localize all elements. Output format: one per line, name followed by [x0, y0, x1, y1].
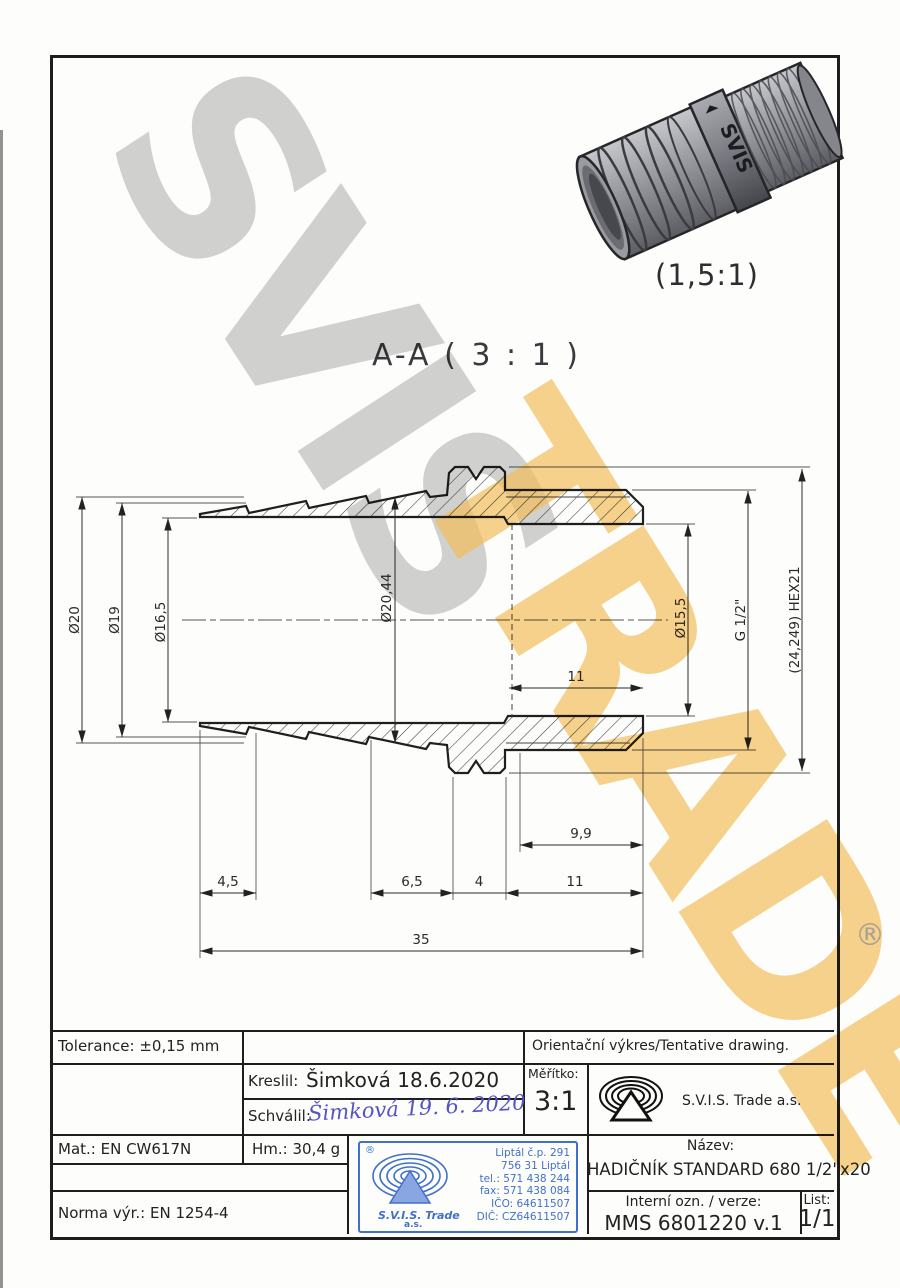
- company-name: S.V.I.S. Trade a.s.: [682, 1093, 801, 1109]
- stamp-address-line: 756 31 Liptál: [440, 1160, 570, 1173]
- extension-lines: [76, 467, 810, 958]
- dim-bore-dia-16-5: Ø16,5: [153, 602, 169, 643]
- part-photo-3d: SVIS: [575, 58, 845, 273]
- dim-bore-depth-11: 11: [567, 669, 584, 685]
- dimension-labels: Ø20 Ø19 Ø16,5 Ø20,44 Ø15,5 G 1/2" (24,24…: [67, 566, 803, 948]
- stamp-address: Liptál č.p. 291 756 31 Liptál tel.: 571 …: [440, 1147, 570, 1224]
- standard-value: Norma výr.: EN 1254-4: [58, 1204, 229, 1222]
- section-view-title: A-A ( 3 : 1 ): [372, 338, 581, 373]
- stamp-address-line: tel.: 571 438 244: [440, 1173, 570, 1186]
- dim-length-11: 11: [566, 874, 583, 890]
- dim-length-4: 4: [475, 874, 484, 890]
- material-value: Mat.: EN CW617N: [58, 1140, 191, 1158]
- dim-length-4-5: 4,5: [217, 874, 238, 890]
- drawing-sheet: SVIS (1,5:1) A-A ( 3 : 1 ): [0, 0, 900, 1288]
- dim-hex-21: (24,249) HEX21: [787, 566, 803, 673]
- stamp-company-suffix: a.s.: [404, 1220, 422, 1230]
- dim-thread-g-half: G 1/2": [733, 599, 749, 642]
- tentative-drawing-note: Orientační výkres/Tentative drawing.: [532, 1038, 789, 1054]
- upper-wall: [200, 467, 643, 524]
- dim-outer-dia-19: Ø19: [107, 606, 123, 634]
- name-label: Název:: [587, 1138, 834, 1154]
- photo-scale-label: (1,5:1): [655, 258, 759, 292]
- tolerance-note: Tolerance: ±0,15 mm: [58, 1037, 219, 1055]
- internal-code-label: Interní ozn. / verze:: [587, 1194, 800, 1210]
- dim-outer-dia-20: Ø20: [67, 606, 83, 634]
- drawn-by-label: Kreslil:: [248, 1072, 298, 1090]
- fitting-render: SVIS: [575, 58, 845, 267]
- dim-length-9-9: 9,9: [570, 826, 591, 842]
- stamp-address-line: Liptál č.p. 291: [440, 1147, 570, 1160]
- sheet-value: 1/1: [798, 1206, 836, 1232]
- part-name: HADIČNÍK STANDARD 680 1/2"x20: [587, 1160, 834, 1179]
- lower-wall: [200, 716, 643, 773]
- company-stamp: ® S.V.I.S. Trade a.s. Liptál č.p. 291 75…: [358, 1141, 578, 1233]
- company-logo: [598, 1074, 664, 1126]
- approved-by-label: Schválil:: [248, 1107, 311, 1125]
- scale-value: 3:1: [534, 1086, 577, 1117]
- stamp-logo: [370, 1151, 450, 1207]
- dim-length-6-5: 6,5: [401, 874, 422, 890]
- internal-code-value: MMS 6801220 v.1: [587, 1211, 800, 1235]
- weight-value: Hm.: 30,4 g: [252, 1140, 340, 1158]
- dim-dia-20-44: Ø20,44: [379, 573, 395, 622]
- stamp-address-line: IČO: 64611507: [440, 1198, 570, 1211]
- scale-label: Měřítko:: [528, 1066, 579, 1081]
- stamp-address-line: DIČ: CZ64611507: [440, 1211, 570, 1224]
- section-drawing: Ø20 Ø19 Ø16,5 Ø20,44 Ø15,5 G 1/2" (24,24…: [0, 420, 900, 1000]
- drawn-by-value: Šimková 18.6.2020: [306, 1068, 499, 1092]
- dimension-lines: [82, 469, 802, 951]
- stamp-address-line: fax: 571 438 084: [440, 1185, 570, 1198]
- dim-bore-dia-15-5: Ø15,5: [673, 598, 689, 639]
- dim-length-35: 35: [412, 932, 429, 948]
